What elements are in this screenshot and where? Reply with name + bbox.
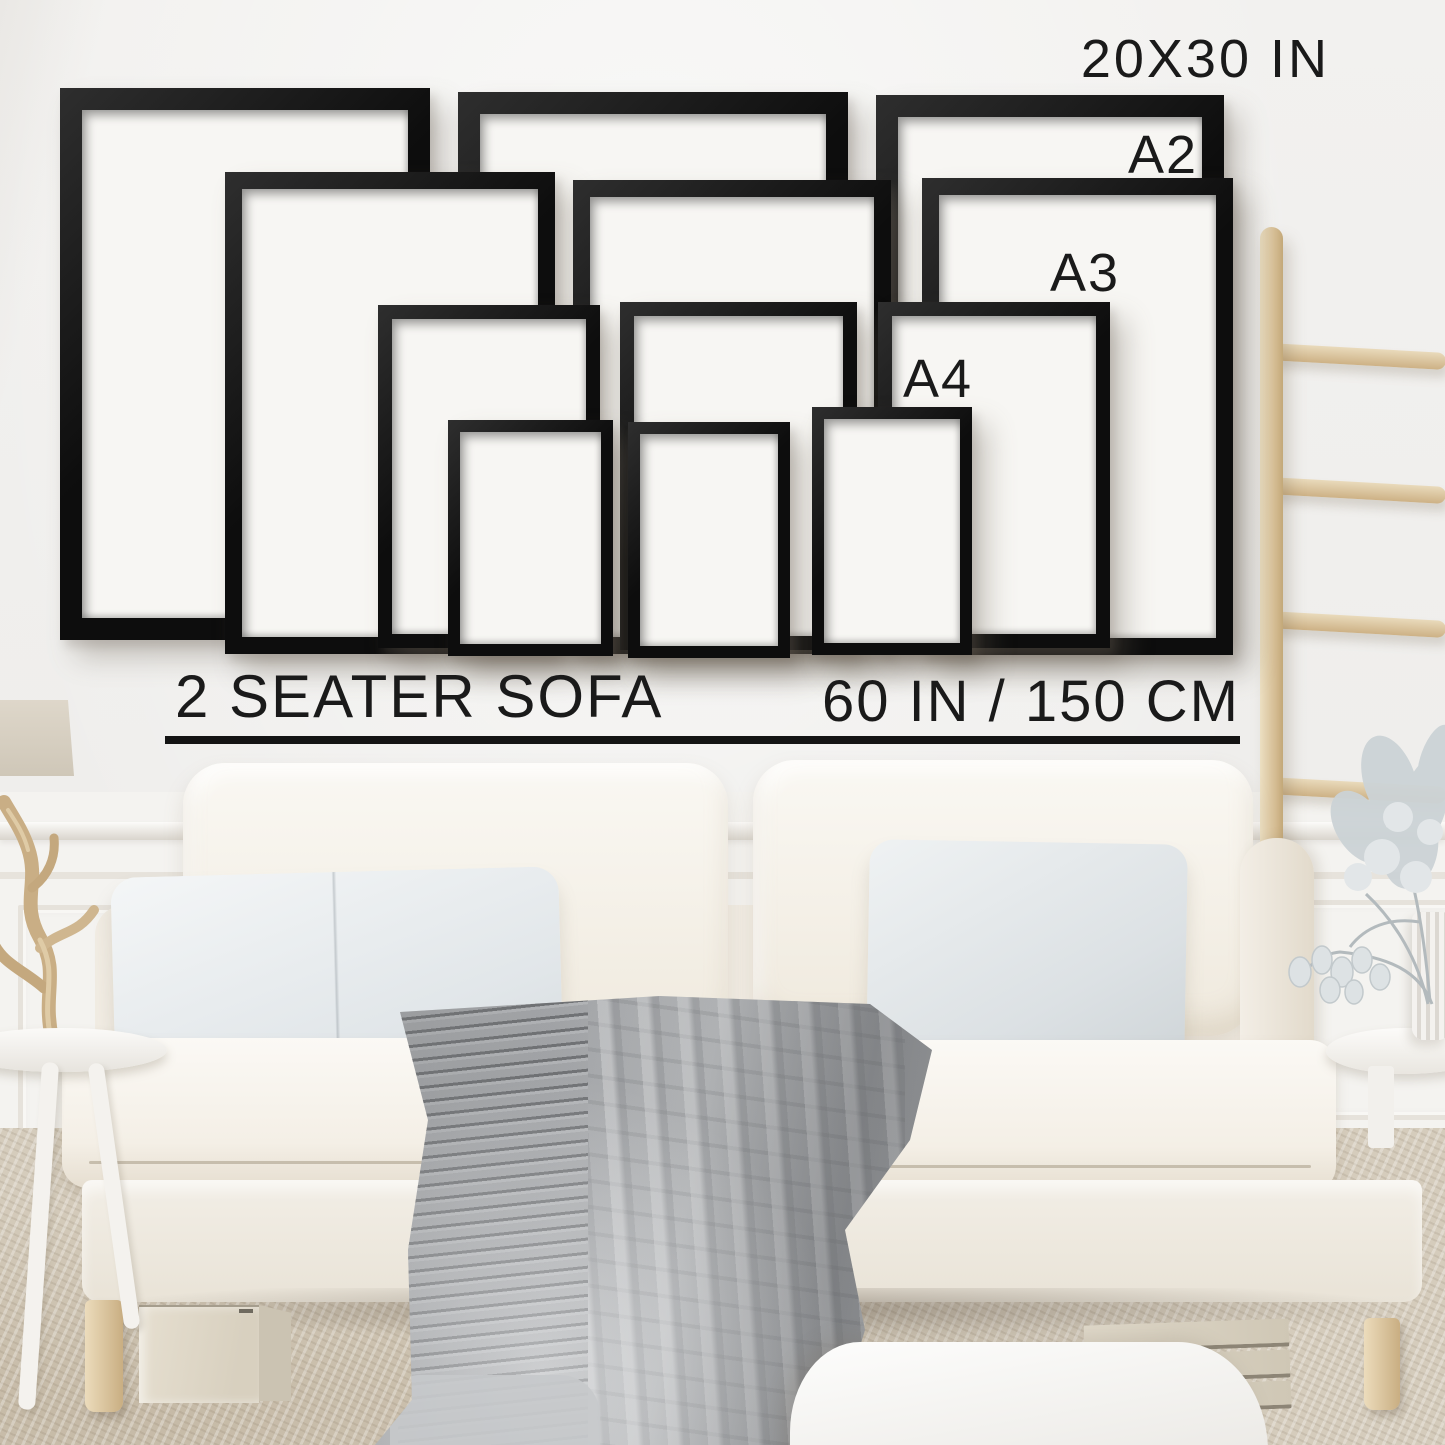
label-size-a3: A3 [1050, 242, 1120, 304]
frame-a4-center [628, 422, 790, 658]
lamp-shade [0, 700, 74, 776]
label-size-20x30: 20X30 IN [1081, 28, 1330, 90]
frame-a4-left [448, 420, 613, 656]
frame-a4-right [812, 407, 972, 655]
frame-size-guide-scene: 20X30 IN A2 A3 A4 2 SEATER SOFA 60 IN / … [0, 0, 1445, 1445]
side-table-right-leg [1368, 1066, 1394, 1148]
blanket-floor-fold [390, 1375, 600, 1445]
eucalyptus-bouquet [1270, 722, 1445, 1012]
label-size-a4: A4 [903, 348, 973, 410]
sofa-width-underline [165, 736, 1240, 744]
driftwood-sculpture [0, 788, 122, 1043]
square-pillow [866, 839, 1188, 1071]
sofa-wooden-leg-right [1364, 1318, 1400, 1410]
box-front [139, 1305, 259, 1403]
floor-pillow [790, 1342, 1268, 1445]
label-sofa: 2 SEATER SOFA [175, 662, 663, 731]
sofa-wooden-leg-left [85, 1300, 123, 1412]
frame-mat [640, 434, 778, 646]
label-sofa-width: 60 IN / 150 CM [822, 668, 1240, 735]
frame-mat [460, 432, 601, 644]
box-handle-slot [239, 1309, 253, 1313]
label-size-a2: A2 [1128, 124, 1198, 186]
box-side [259, 1303, 291, 1401]
storage-box-left [139, 1303, 291, 1401]
frame-mat [824, 419, 960, 643]
